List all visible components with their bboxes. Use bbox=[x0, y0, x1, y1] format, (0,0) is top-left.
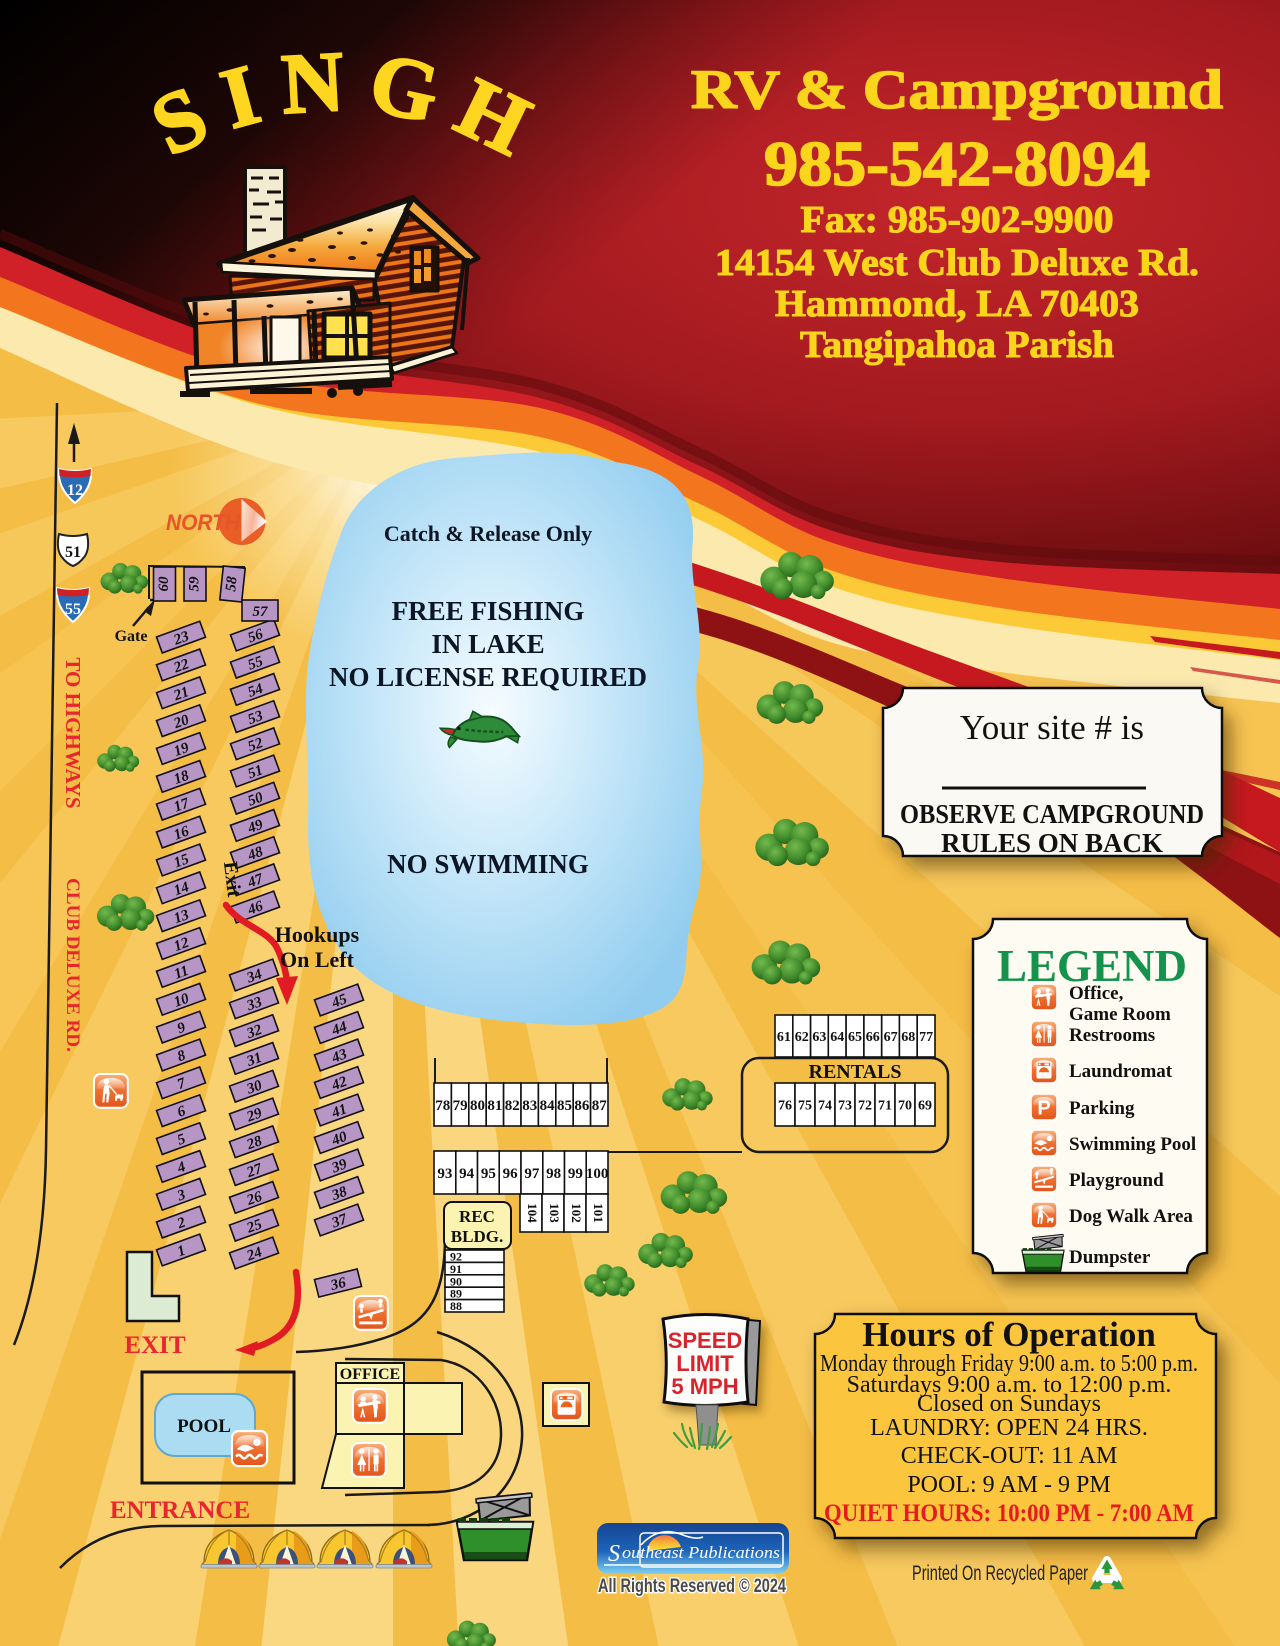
svg-text:104: 104 bbox=[525, 1203, 540, 1223]
svg-text:73: 73 bbox=[838, 1099, 852, 1114]
svg-text:86: 86 bbox=[574, 1098, 590, 1114]
svg-text:Tangipahoa Parish: Tangipahoa Parish bbox=[800, 324, 1114, 366]
svg-text:102: 102 bbox=[569, 1203, 584, 1223]
svg-text:Your site # is: Your site # is bbox=[960, 708, 1144, 747]
svg-text:84: 84 bbox=[540, 1098, 556, 1114]
svg-text:63: 63 bbox=[812, 1030, 826, 1045]
svg-text:74: 74 bbox=[818, 1099, 832, 1114]
svg-text:57: 57 bbox=[253, 604, 269, 620]
svg-text:83: 83 bbox=[522, 1098, 537, 1114]
svg-text:Dog Walk Area: Dog Walk Area bbox=[1069, 1206, 1193, 1227]
svg-text:85: 85 bbox=[557, 1098, 572, 1114]
svg-text:OBSERVE CAMPGROUND: OBSERVE CAMPGROUND bbox=[900, 799, 1204, 829]
svg-text:Swimming Pool: Swimming Pool bbox=[1069, 1134, 1196, 1155]
svg-text:66: 66 bbox=[866, 1030, 880, 1045]
svg-text:14154 West Club Deluxe Rd.: 14154 West Club Deluxe Rd. bbox=[715, 242, 1199, 284]
svg-text:101: 101 bbox=[591, 1203, 606, 1223]
svg-text:outheast Publications: outheast Publications bbox=[622, 1543, 780, 1562]
svg-text:59: 59 bbox=[186, 576, 202, 592]
svg-text:LIMIT: LIMIT bbox=[676, 1351, 734, 1376]
svg-text:QUIET HOURS: 10:00 PM - 7:00 A: QUIET HOURS: 10:00 PM - 7:00 AM bbox=[824, 1500, 1194, 1527]
svg-text:CHECK-OUT: 11 AM: CHECK-OUT: 11 AM bbox=[901, 1443, 1118, 1469]
svg-text:5 MPH: 5 MPH bbox=[671, 1374, 738, 1399]
svg-text:EXIT: EXIT bbox=[124, 1332, 185, 1359]
svg-text:Catch & Release Only: Catch & Release Only bbox=[384, 521, 592, 546]
svg-text:87: 87 bbox=[592, 1098, 608, 1114]
svg-text:Dumpster: Dumpster bbox=[1069, 1247, 1151, 1268]
svg-text:100: 100 bbox=[586, 1166, 609, 1182]
svg-text:65: 65 bbox=[848, 1030, 862, 1045]
svg-text:REC: REC bbox=[459, 1207, 495, 1226]
svg-text:Hammond, LA 70403: Hammond, LA 70403 bbox=[775, 283, 1139, 325]
svg-text:Restrooms: Restrooms bbox=[1069, 1025, 1155, 1046]
svg-text:51: 51 bbox=[65, 544, 81, 561]
svg-text:Gate: Gate bbox=[115, 628, 148, 645]
svg-text:61: 61 bbox=[777, 1030, 791, 1045]
svg-text:985-542-8094: 985-542-8094 bbox=[764, 128, 1150, 199]
svg-text:62: 62 bbox=[795, 1030, 809, 1045]
svg-text:55: 55 bbox=[65, 601, 81, 618]
svg-text:99: 99 bbox=[568, 1166, 583, 1182]
svg-text:76: 76 bbox=[778, 1099, 792, 1114]
svg-text:IN LAKE: IN LAKE bbox=[431, 629, 544, 659]
svg-text:Fax: 985-902-9900: Fax: 985-902-9900 bbox=[801, 199, 1114, 241]
svg-text:RULES ON BACK: RULES ON BACK bbox=[941, 828, 1163, 858]
svg-text:Playground: Playground bbox=[1069, 1170, 1164, 1191]
svg-text:OFFICE: OFFICE bbox=[340, 1366, 400, 1383]
svg-text:NORTH: NORTH bbox=[166, 510, 241, 535]
svg-text:BLDG.: BLDG. bbox=[451, 1227, 503, 1246]
svg-text:94: 94 bbox=[459, 1166, 475, 1182]
svg-text:60: 60 bbox=[156, 576, 172, 592]
svg-text:POOL: POOL bbox=[177, 1416, 231, 1437]
svg-text:RENTALS: RENTALS bbox=[809, 1061, 902, 1083]
svg-text:58: 58 bbox=[223, 575, 241, 592]
svg-text:Exit: Exit bbox=[219, 860, 245, 898]
svg-text:SPEED: SPEED bbox=[668, 1328, 743, 1353]
svg-text:79: 79 bbox=[453, 1098, 468, 1114]
svg-text:12: 12 bbox=[67, 482, 83, 499]
svg-text:93: 93 bbox=[437, 1166, 452, 1182]
svg-text:Laundromat: Laundromat bbox=[1069, 1061, 1173, 1082]
svg-text:77: 77 bbox=[919, 1030, 933, 1045]
svg-text:POOL: 9 AM - 9 PM: POOL: 9 AM - 9 PM bbox=[907, 1472, 1110, 1498]
svg-text:75: 75 bbox=[798, 1099, 812, 1114]
svg-text:Game Room: Game Room bbox=[1069, 1004, 1171, 1025]
svg-text:70: 70 bbox=[898, 1099, 912, 1114]
svg-text:NO LICENSE REQUIRED: NO LICENSE REQUIRED bbox=[329, 662, 647, 692]
svg-text:69: 69 bbox=[918, 1099, 932, 1114]
svg-text:71: 71 bbox=[878, 1099, 892, 1114]
svg-text:81: 81 bbox=[487, 1098, 502, 1114]
svg-text:103: 103 bbox=[547, 1203, 562, 1223]
svg-text:Closed on Sundays: Closed on Sundays bbox=[917, 1391, 1101, 1417]
svg-text:68: 68 bbox=[901, 1030, 915, 1045]
svg-text:TO HIGHWAYS: TO HIGHWAYS bbox=[61, 657, 85, 808]
svg-text:88: 88 bbox=[450, 1299, 462, 1313]
svg-text:Office,: Office, bbox=[1069, 983, 1124, 1004]
svg-text:95: 95 bbox=[481, 1166, 496, 1182]
svg-text:96: 96 bbox=[503, 1166, 519, 1182]
svg-text:ENTRANCE: ENTRANCE bbox=[110, 1497, 250, 1524]
svg-text:LAUNDRY: OPEN 24 HRS.: LAUNDRY: OPEN 24 HRS. bbox=[870, 1415, 1148, 1441]
svg-text:On Left: On Left bbox=[280, 947, 355, 972]
svg-text:S: S bbox=[608, 1541, 620, 1567]
svg-text:Hours of Operation: Hours of Operation bbox=[862, 1315, 1156, 1354]
svg-text:Parking: Parking bbox=[1069, 1098, 1135, 1119]
svg-text:RV & Campground: RV & Campground bbox=[691, 59, 1223, 120]
svg-text:All Rights Reserved © 2024: All Rights Reserved © 2024 bbox=[598, 1576, 786, 1597]
svg-text:78: 78 bbox=[435, 1098, 450, 1114]
svg-text:98: 98 bbox=[546, 1166, 561, 1182]
svg-text:NO SWIMMING: NO SWIMMING bbox=[387, 849, 589, 879]
svg-text:Printed On Recycled Paper: Printed On Recycled Paper bbox=[912, 1562, 1088, 1585]
svg-text:FREE FISHING: FREE FISHING bbox=[392, 596, 585, 626]
svg-text:CLUB DELUXE RD.: CLUB DELUXE RD. bbox=[62, 878, 83, 1052]
svg-text:Hookups: Hookups bbox=[275, 922, 360, 947]
svg-text:64: 64 bbox=[830, 1030, 844, 1045]
svg-text:82: 82 bbox=[505, 1098, 520, 1114]
svg-text:67: 67 bbox=[884, 1030, 898, 1045]
svg-text:80: 80 bbox=[470, 1098, 485, 1114]
svg-text:72: 72 bbox=[858, 1099, 872, 1114]
svg-text:97: 97 bbox=[524, 1166, 540, 1182]
